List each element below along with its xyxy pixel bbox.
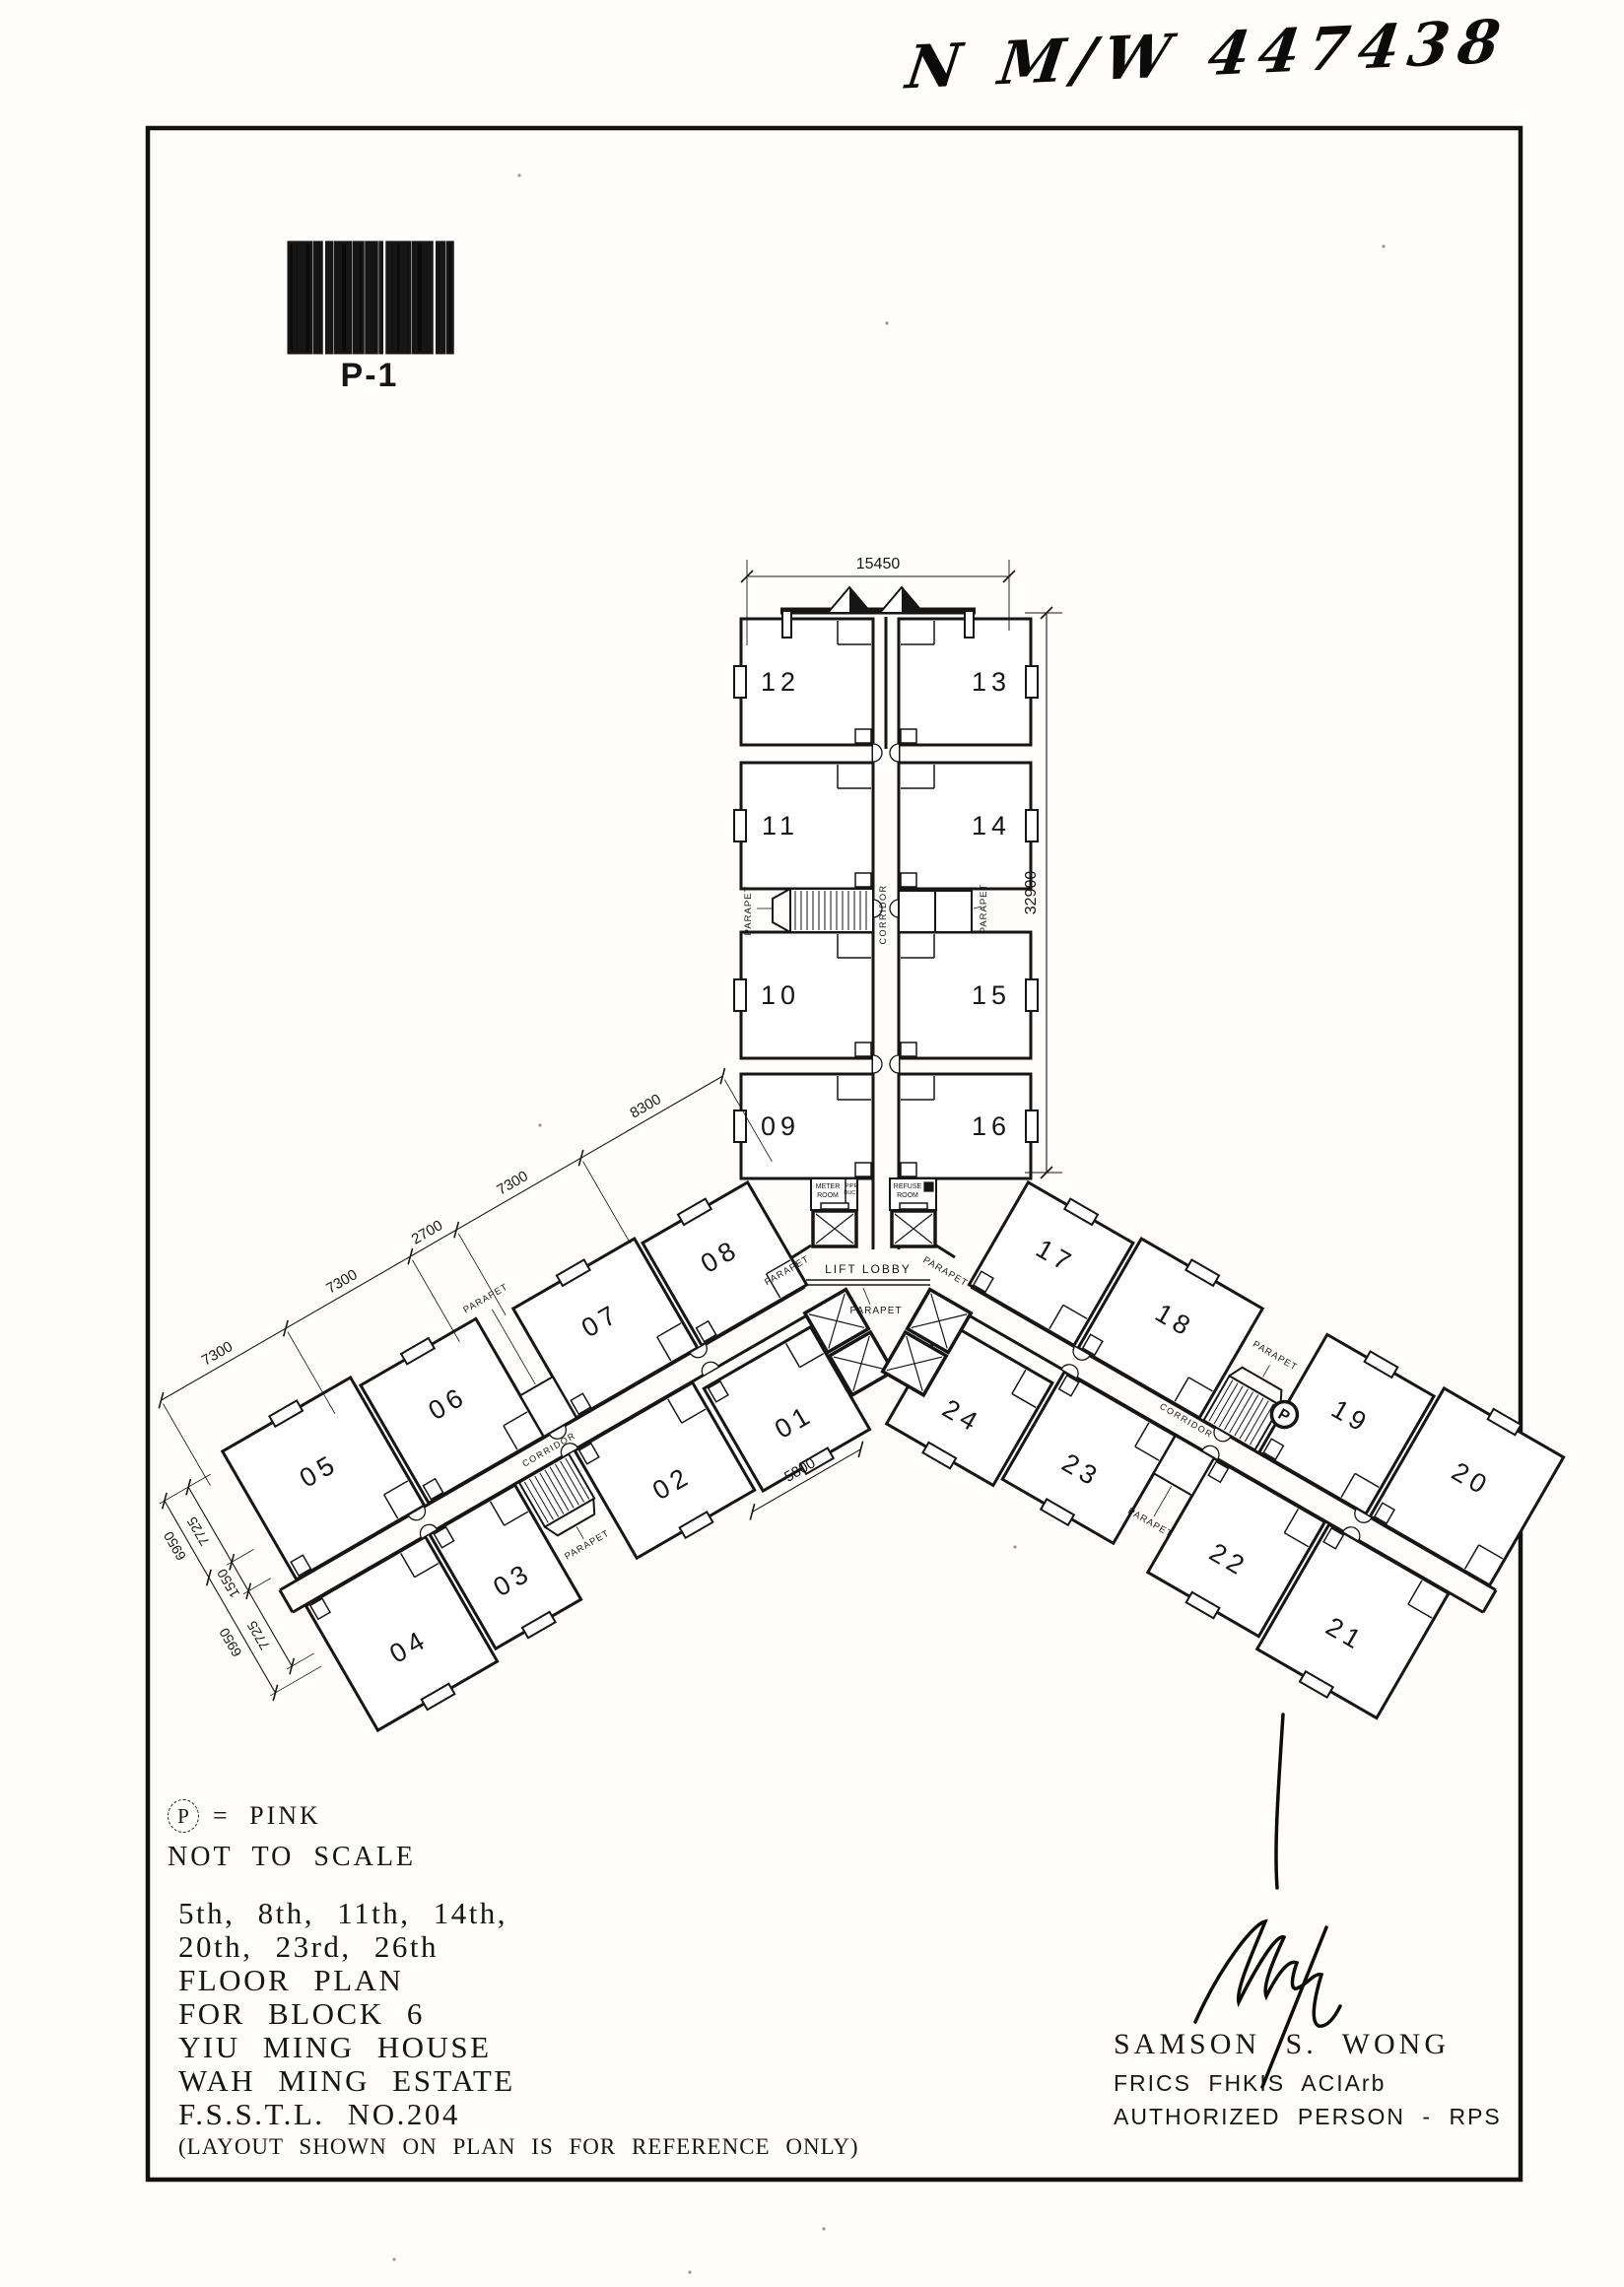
barcode-bar xyxy=(301,242,303,353)
dim-tick xyxy=(278,1320,294,1336)
dim-extension xyxy=(270,1666,321,1696)
unit-number: 12 xyxy=(761,667,800,697)
entrance-recess xyxy=(855,873,871,887)
barcode-bar xyxy=(289,242,294,353)
bay-window xyxy=(734,979,746,1011)
barcode-bar xyxy=(349,242,351,353)
legend: P = PINK NOT TO SCALE xyxy=(168,1799,416,1873)
entrance-recess xyxy=(901,729,916,743)
title-line: F.S.S.T.L. NO.204 xyxy=(178,2098,515,2131)
dim-extension xyxy=(163,1404,210,1486)
dim-label: 7725 xyxy=(183,1514,213,1549)
bay-window xyxy=(734,810,746,841)
dim-tick xyxy=(201,1570,217,1585)
refuse-room-label: ROOM xyxy=(897,1192,918,1199)
entrance-recess xyxy=(901,1163,916,1177)
barcode-bar xyxy=(396,242,401,353)
bay-window xyxy=(1026,666,1038,698)
scan-speck xyxy=(392,2257,395,2260)
title-line: FLOOR PLAN xyxy=(178,1964,515,1997)
scan-speck xyxy=(1013,1545,1016,1548)
wall xyxy=(280,1590,293,1613)
scan-speck xyxy=(538,1123,541,1126)
parapet-label: PARAPET xyxy=(1125,1506,1174,1540)
barcode-bar xyxy=(403,242,405,353)
lift-indicator xyxy=(821,1203,848,1209)
entrance-recess xyxy=(901,1043,916,1056)
barcode-bar xyxy=(304,242,311,353)
dim-label: 7725 xyxy=(243,1618,273,1652)
unit-number: 10 xyxy=(761,980,800,1010)
parapet-label: PARAPET xyxy=(921,1254,970,1289)
parapet-label: PARAPET xyxy=(850,1306,903,1316)
leader-line xyxy=(1154,1486,1172,1516)
dim-tick xyxy=(573,1150,588,1166)
dim-tick xyxy=(852,1442,868,1457)
dim-label: 8300 xyxy=(628,1091,664,1121)
dim-extension xyxy=(160,1474,211,1504)
leader-line xyxy=(1263,1365,1270,1377)
unit-number: 11 xyxy=(762,811,799,841)
title-line: FOR BLOCK 6 xyxy=(178,1997,515,2031)
dim-label: 6950 xyxy=(160,1528,189,1563)
wall xyxy=(1483,1590,1496,1613)
dim-label: 2700 xyxy=(409,1217,445,1247)
corridor-label: CORRIDOR xyxy=(878,885,888,945)
unit-number: 14 xyxy=(972,811,1011,841)
leader-line xyxy=(576,1527,583,1539)
barcode-bar xyxy=(417,242,424,353)
barcode-label: P-1 xyxy=(341,357,399,394)
barcode: P-1 xyxy=(289,242,452,394)
scan-speck xyxy=(1382,244,1385,247)
dim-tick xyxy=(744,1504,760,1519)
meter-room-label: METER xyxy=(816,1183,841,1190)
barcode-bar xyxy=(390,242,394,353)
barcode-bar xyxy=(296,242,300,353)
barcode-bar xyxy=(335,242,339,353)
barcode-bar xyxy=(447,242,452,353)
parapet-return xyxy=(782,611,791,638)
bay-window xyxy=(734,666,746,698)
wall xyxy=(936,1245,955,1257)
dim-label: 1550 xyxy=(214,1566,243,1600)
dim-extension xyxy=(287,1653,314,1669)
dim-label: 32900 xyxy=(1023,871,1040,915)
dim-label: 7300 xyxy=(199,1338,236,1369)
bay-window xyxy=(1026,979,1038,1011)
dim-tick xyxy=(402,1248,418,1264)
bay-window xyxy=(1026,810,1038,841)
not-to-scale-note: NOT TO SCALE xyxy=(168,1842,416,1873)
pipe-duct-label: PIPE xyxy=(846,1183,858,1189)
meter-room-label: ROOM xyxy=(817,1192,839,1199)
title-line: WAH MING ESTATE xyxy=(178,2064,515,2098)
unit-number: 16 xyxy=(972,1111,1011,1141)
north-wing: 1211100913141516PARAPETPARAPETCORRIDORME… xyxy=(734,587,1038,1249)
scan-speck xyxy=(885,321,888,324)
authorized-person-name: SAMSON S. WONG xyxy=(1114,2028,1502,2061)
barcode-bar xyxy=(380,242,382,353)
door-opening xyxy=(890,1055,899,1073)
parapet-label: PARAPET xyxy=(1251,1339,1299,1374)
dim-extension xyxy=(227,1549,254,1565)
dim-extension xyxy=(243,1579,271,1594)
dim-label: 7300 xyxy=(494,1168,530,1198)
authorized-person-credentials: FRICS FHKIS ACIArb xyxy=(1114,2070,1502,2097)
barcode-bar xyxy=(330,242,332,353)
signature-block: SAMSON S. WONG FRICS FHKIS ACIArb AUTHOR… xyxy=(1114,2028,1502,2130)
parapet-label: PARAPET xyxy=(979,884,989,934)
barcode-bar xyxy=(358,242,363,353)
barcode-bar xyxy=(341,242,348,353)
entrance-recess xyxy=(855,729,871,743)
title-line: YIU MING HOUSE xyxy=(178,2031,515,2064)
east-wing: 1718192024232221PARAPETPARAPETCORRIDORP xyxy=(852,1135,1574,1744)
unit-number: 13 xyxy=(972,667,1011,697)
door-opening xyxy=(890,744,899,762)
refuse-chute xyxy=(924,1182,933,1191)
dim-label: 7300 xyxy=(323,1266,360,1297)
barcode-bar xyxy=(318,242,322,353)
pink-marker-meaning: = PINK xyxy=(213,1801,321,1831)
scan-speck xyxy=(822,2227,825,2230)
dim-line xyxy=(165,1501,276,1693)
dim-extension xyxy=(412,1260,459,1342)
pipe-duct-label: DUCT xyxy=(844,1190,859,1196)
barcode-bar xyxy=(431,242,433,353)
stair-parapet xyxy=(773,889,790,932)
barcode-bar xyxy=(406,242,410,353)
door-opening xyxy=(890,900,899,917)
lift-lobby-label: LIFT LOBBY xyxy=(825,1262,912,1276)
unit-number: 09 xyxy=(761,1111,800,1141)
dim-extension xyxy=(583,1162,631,1244)
dim-tick xyxy=(448,1222,464,1238)
parapet-label: PARAPET xyxy=(743,886,754,936)
title-line: 20th, 23rd, 26th xyxy=(178,1930,515,1964)
refuse-room-label: REFUSE xyxy=(894,1183,922,1190)
dim-label: 6950 xyxy=(216,1625,245,1659)
entrance-recess xyxy=(901,873,916,887)
title-block: 5th, 8th, 11th, 14th, 20th, 23rd, 26th F… xyxy=(178,1897,515,2131)
title-line: 5th, 8th, 11th, 14th, xyxy=(178,1897,515,1930)
bay-window xyxy=(734,1110,746,1142)
barcode-bar xyxy=(425,242,429,353)
barcode-bar xyxy=(373,242,377,353)
unit-number: 15 xyxy=(972,980,1011,1010)
barcode-bar xyxy=(370,242,372,353)
parapet-return xyxy=(965,611,974,638)
barcode-bar xyxy=(413,242,415,353)
entrance-recess xyxy=(855,1163,871,1177)
barcode-bar xyxy=(367,242,369,353)
dim-tick xyxy=(153,1392,169,1408)
dim-label: 15450 xyxy=(856,556,901,572)
dim-tick xyxy=(714,1068,730,1084)
door-opening xyxy=(873,1055,882,1073)
barcode-bar xyxy=(442,242,444,353)
parapet-label: PARAPET xyxy=(563,1528,611,1563)
authorized-person-role: AUTHORIZED PERSON - RPS xyxy=(1114,2104,1502,2130)
door-opening xyxy=(873,744,882,762)
pink-marker-symbol: P xyxy=(168,1799,199,1833)
layout-reference-note: (LAYOUT SHOWN ON PLAN IS FOR REFERENCE O… xyxy=(178,2134,859,2160)
barcode-bar xyxy=(387,242,389,353)
barcode-bar xyxy=(355,242,357,353)
bay-window xyxy=(1026,1110,1038,1142)
scan-speck xyxy=(517,173,520,176)
barcode-bar xyxy=(327,242,329,353)
barcode-bar xyxy=(314,242,316,353)
scan-speck xyxy=(688,2270,691,2273)
lift-indicator xyxy=(900,1203,927,1209)
entrance-recess xyxy=(855,1043,871,1056)
scanned-floor-plan-page: P-11211100913141516PARAPETPARAPETCORRIDO… xyxy=(0,0,1624,2287)
barcode-bar xyxy=(438,242,441,353)
leader-line xyxy=(863,1288,870,1305)
